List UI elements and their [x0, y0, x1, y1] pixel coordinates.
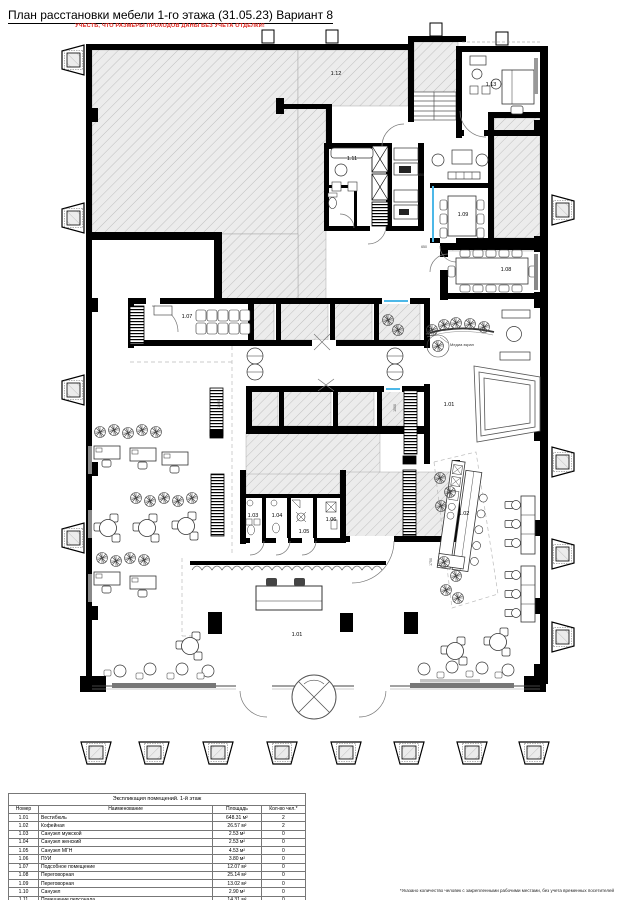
room-label: 1.06 — [326, 517, 337, 523]
drawing-sheet: План расстановки мебели 1-го этажа (31.0… — [0, 0, 622, 900]
amphitheater — [474, 366, 540, 442]
table-row: 1.10Санузел2.90 м²0 — [9, 888, 306, 896]
floor-plan: 1.12 1.13 1.11 1.09 1.08 1.07 1.01 1.02 … — [0, 0, 622, 900]
table-row: 1.04Санузел женский2.53 м²0 — [9, 838, 306, 846]
explication-table: Экспликация помещений. 1-й этаж Номер На… — [8, 793, 306, 900]
stairs — [412, 92, 456, 120]
dimension-label: 650 — [418, 173, 424, 177]
table-row: 1.06ПУИ3.80 м²0 — [9, 855, 306, 863]
room-label: 1.13 — [486, 82, 497, 88]
media-screen-label: Медиа экран — [450, 342, 474, 347]
room-label: 1.04 — [272, 513, 283, 519]
table-row: 1.09Переговорная13.02 м²0 — [9, 880, 306, 888]
room-label: 1.01 — [444, 402, 455, 408]
room-label: 1.09 — [458, 212, 469, 218]
room-label: 1.07 — [182, 314, 193, 320]
room-label: 1.08 — [501, 267, 512, 273]
table-row: 1.08Переговорная25.14 м²0 — [9, 871, 306, 879]
table-row: 1.02Кофейная26.57 м²2 — [9, 822, 306, 830]
room-label: 1.11 — [347, 156, 357, 162]
table-title: Экспликация помещений. 1-й этаж — [9, 794, 306, 806]
room-label: 1.05 — [299, 529, 310, 535]
col-people: Кол-во чел.* — [261, 805, 305, 813]
dimension-label: 1500 — [217, 400, 221, 408]
col-number: Номер — [9, 805, 39, 813]
table-row: 1.03Санузел мужской2.53 м²0 — [9, 830, 306, 838]
room-label: 1.02 — [459, 511, 470, 517]
table-row: 1.01Вестибюль648.31 м²2 — [9, 814, 306, 822]
col-name: Наименование — [39, 805, 213, 813]
bench — [112, 683, 216, 688]
room-label: 1.01 — [292, 632, 303, 638]
room-label: 1.12 — [331, 71, 342, 77]
col-area: Площадь — [213, 805, 262, 813]
dimension-label: 1500 — [393, 404, 397, 412]
revolving-door — [292, 675, 336, 719]
room-label: 1.03 — [248, 513, 259, 519]
bench — [410, 683, 514, 688]
window-seating — [505, 501, 521, 618]
table-row: 1.05Санузел МГН4.53 м²0 — [9, 847, 306, 855]
footnote: *Указано количество человек с закрепленн… — [400, 888, 614, 893]
entrance-facade — [92, 675, 540, 719]
table-header-row: Номер Наименование Площадь Кол-во чел.* — [9, 805, 306, 813]
dimension-label: 650 — [421, 245, 427, 249]
table-row: 1.07Подсобное помещение12.07 м²0 — [9, 863, 306, 871]
table-row: 1.11Помещение персонала14.31 м²0 — [9, 896, 306, 900]
dimension-label: 1750 — [429, 558, 433, 566]
